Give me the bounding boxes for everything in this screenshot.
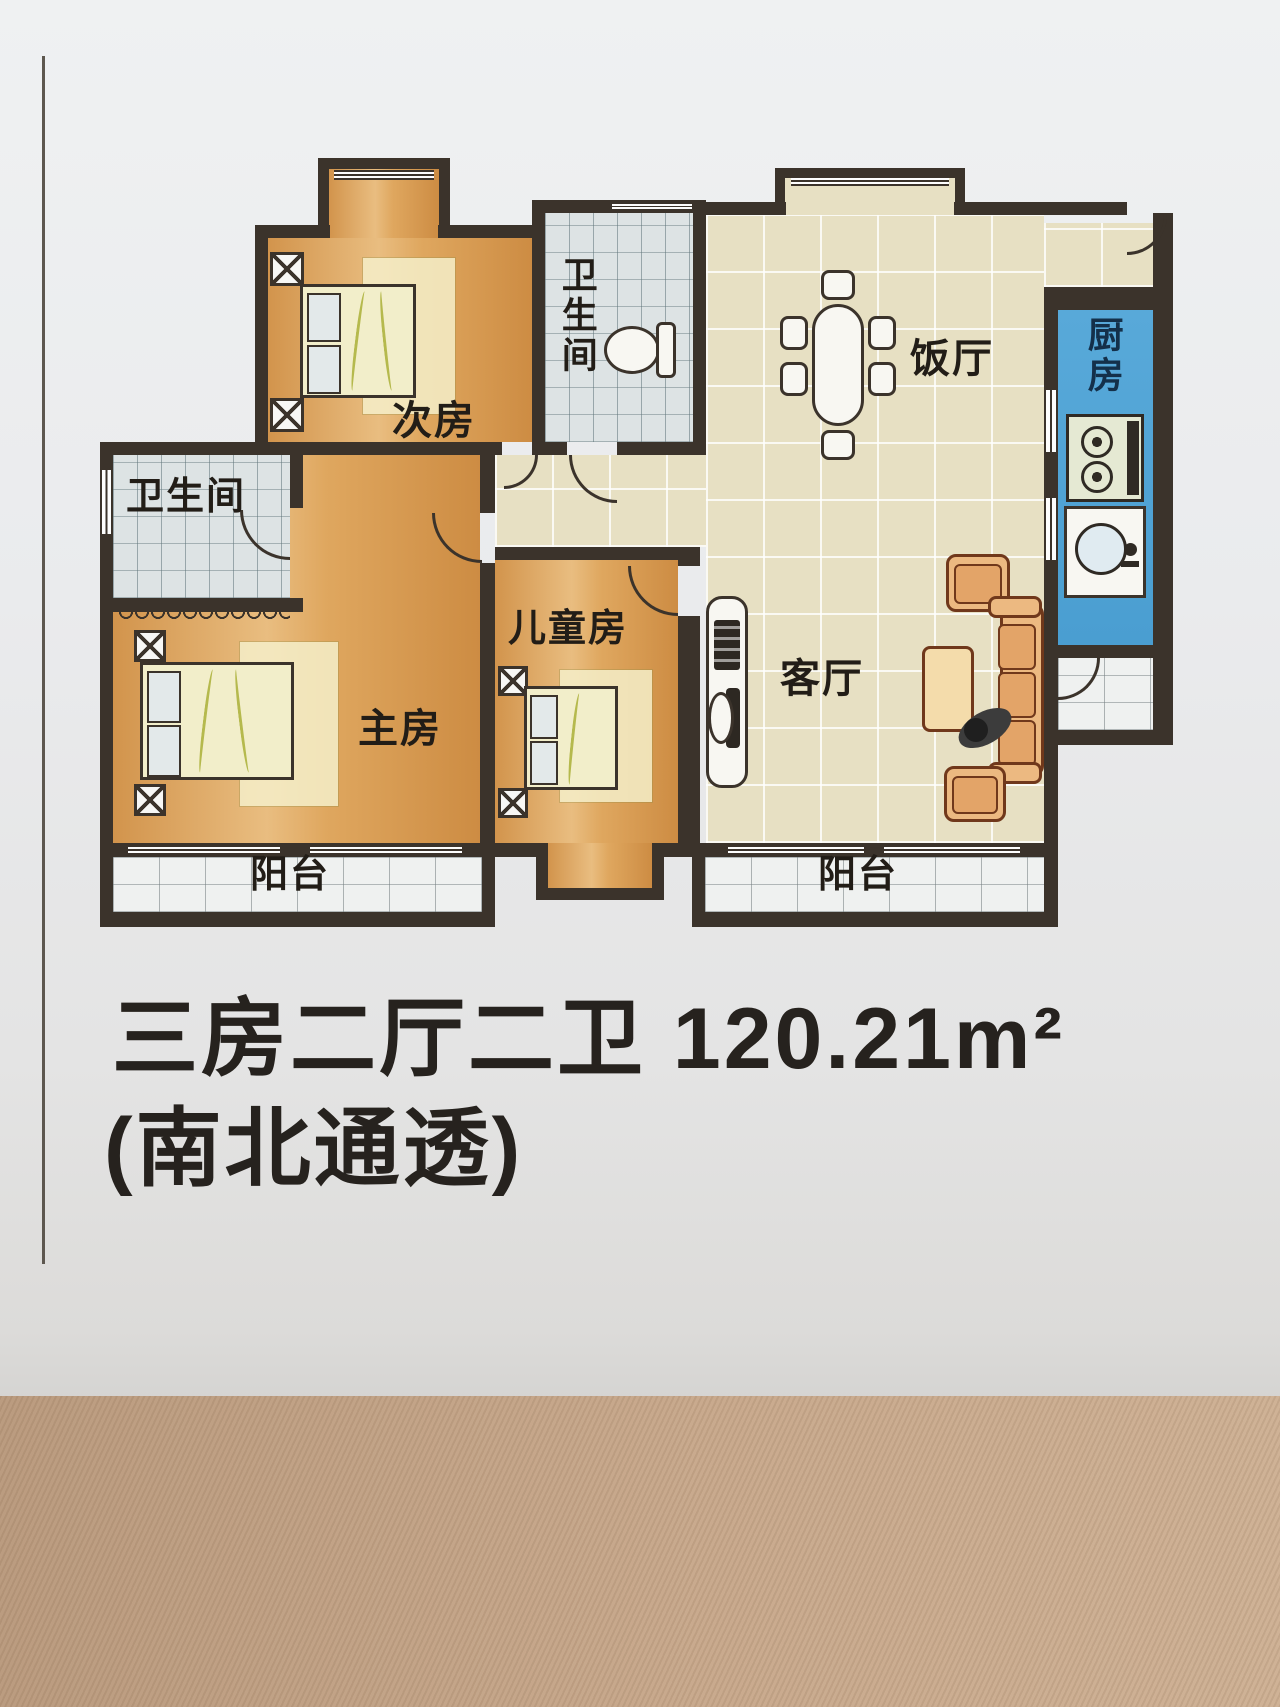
window: [310, 845, 462, 855]
pillow-icon: [530, 741, 558, 785]
wall-segment: [532, 213, 545, 455]
wall-segment: [480, 455, 495, 513]
window: [884, 845, 1020, 855]
blanket-line: [349, 291, 368, 391]
dining-chair-icon: [868, 316, 896, 350]
bed-icon: [524, 686, 618, 790]
armchair-cushion: [952, 776, 998, 814]
wall-segment: [480, 563, 495, 843]
pillow-icon: [530, 695, 558, 739]
wall-segment: [1044, 287, 1058, 658]
faucet-icon: [1124, 543, 1137, 556]
nightstand-icon: [134, 630, 166, 662]
wall-segment: [678, 616, 700, 843]
wall-segment: [617, 442, 706, 455]
room-label-living-room: 客厅: [780, 658, 864, 700]
stove-knobs: [1127, 421, 1139, 495]
nightstand-icon: [134, 784, 166, 816]
nightstand-icon: [498, 788, 528, 818]
room-label-master-bedroom: 主房: [358, 708, 442, 750]
wall-segment: [290, 455, 303, 508]
sofa-cushion: [998, 624, 1036, 670]
wall-segment: [438, 225, 545, 238]
bed-icon: [300, 284, 416, 398]
nightstand-icon: [270, 252, 304, 286]
burner-icon: [1081, 426, 1113, 458]
dining-chair-icon: [821, 270, 855, 300]
toilet-icon: [604, 326, 660, 374]
blanket-line: [566, 693, 583, 785]
room-label-dining-room: 饭厅: [910, 338, 994, 380]
room-label-bathroom-left: 卫生间: [126, 478, 246, 518]
wall-segment: [495, 547, 678, 560]
window: [1044, 390, 1058, 452]
wall-segment: [536, 888, 664, 900]
nightstand-icon: [270, 398, 304, 432]
tv-screen-icon: [708, 692, 734, 744]
closet-scallop-line: [118, 612, 290, 622]
stove-icon: [1066, 414, 1144, 502]
side-table-icon: [922, 646, 974, 732]
caption-line-1: 三房二厅二卫 120.21m²: [112, 968, 1065, 1093]
dining-chair-icon: [780, 362, 808, 396]
wall-segment: [693, 200, 706, 455]
window: [791, 176, 949, 186]
sink-icon: [1064, 506, 1146, 598]
dining-chair-icon: [780, 316, 808, 350]
window: [612, 202, 692, 211]
window: [1044, 498, 1058, 560]
burner-icon: [1081, 461, 1113, 493]
wall-segment: [545, 442, 567, 455]
room-label-bathroom-top: 卫生间: [558, 256, 596, 376]
dining-table-icon: [812, 304, 864, 426]
sofa-armrest: [988, 596, 1042, 618]
speaker-icon: [714, 620, 740, 670]
dining-chair-icon: [821, 430, 855, 460]
pillow-icon: [147, 671, 181, 723]
dining-chair-icon: [868, 362, 896, 396]
window: [100, 470, 113, 534]
wall-segment: [100, 442, 502, 455]
bed-icon: [140, 662, 294, 780]
room-floor-dining-living: [706, 215, 1044, 843]
window: [334, 170, 434, 180]
wall-segment: [113, 598, 303, 612]
blanket-line: [197, 669, 217, 773]
blanket-line: [378, 291, 395, 391]
wall-segment: [692, 912, 1044, 927]
room-label-children-room: 儿童房: [508, 610, 628, 650]
faucet-icon: [1121, 561, 1139, 567]
room-label-kitchen: 厨房: [1084, 316, 1122, 396]
wall-segment: [1044, 287, 1173, 310]
basin-icon: [1075, 523, 1127, 575]
floorplan: 次房 卫生间 饭厅 厨房 卫生间 主房 儿童房 客厅 阳台 阳台: [0, 0, 1280, 1707]
room-label-secondary-bedroom: 次房: [392, 400, 476, 442]
toilet-tank-icon: [656, 322, 676, 378]
wall-segment: [678, 547, 700, 566]
wall-segment: [1044, 730, 1173, 745]
wall-segment: [255, 225, 268, 455]
wall-segment: [1044, 645, 1058, 927]
room-label-balcony-right: 阳台: [818, 856, 898, 896]
pillow-icon: [307, 345, 341, 394]
pillow-icon: [147, 725, 181, 777]
plant-pot-icon: [964, 718, 988, 742]
pillow-icon: [307, 293, 341, 342]
wall-segment: [1044, 645, 1173, 658]
wall-segment: [954, 202, 1127, 215]
wall-segment: [706, 202, 786, 215]
room-label-balcony-left: 阳台: [250, 856, 330, 896]
bay-children-room: [548, 843, 652, 888]
caption-line-2: (南北通透): [104, 1078, 523, 1203]
blanket-line: [233, 669, 253, 773]
wall-segment: [100, 912, 495, 927]
